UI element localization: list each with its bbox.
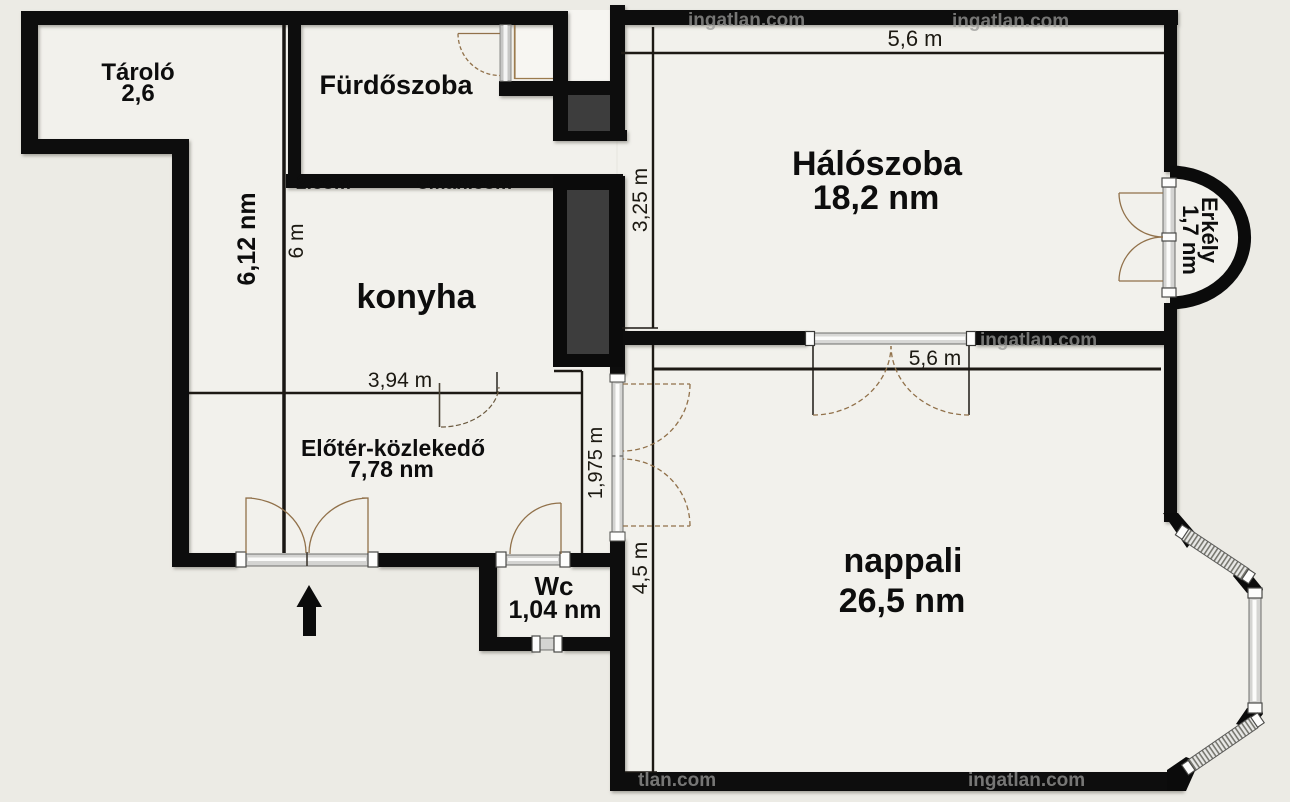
svg-text:5,6 m: 5,6 m	[909, 347, 962, 370]
svg-text:2.com: 2.com	[296, 173, 351, 194]
svg-text:3,94 m: 3,94 m	[368, 369, 432, 392]
svg-text:1,7 nm: 1,7 nm	[1178, 205, 1203, 275]
svg-text:18,2 nm: 18,2 nm	[813, 179, 940, 217]
svg-text:konyha: konyha	[356, 278, 476, 316]
svg-text:ingatlan.com: ingatlan.com	[968, 770, 1085, 791]
svg-text:3,25 m: 3,25 m	[629, 168, 652, 232]
svg-text:5,6 m: 5,6 m	[887, 26, 942, 51]
svg-text:1,975 m: 1,975 m	[585, 427, 607, 499]
svg-text:4,5 m: 4,5 m	[629, 542, 652, 595]
svg-text:oman.com: oman.com	[417, 173, 512, 194]
svg-text:ingatlan.com: ingatlan.com	[952, 11, 1069, 32]
svg-text:ingatlan.com: ingatlan.com	[688, 10, 805, 31]
svg-text:7,78 nm: 7,78 nm	[348, 456, 434, 482]
svg-text:ingatlan.com: ingatlan.com	[980, 330, 1097, 351]
svg-text:Fürdőszoba: Fürdőszoba	[320, 70, 474, 100]
svg-text:26,5 nm: 26,5 nm	[839, 582, 966, 620]
svg-text:6 m: 6 m	[285, 223, 308, 258]
svg-text:tlan.com: tlan.com	[638, 770, 716, 791]
svg-text:6,12 nm: 6,12 nm	[233, 192, 261, 285]
svg-text:Hálószoba: Hálószoba	[792, 145, 963, 183]
svg-text:1,04 nm: 1,04 nm	[508, 596, 601, 624]
svg-text:nappali: nappali	[843, 542, 962, 580]
svg-text:2,6: 2,6	[121, 80, 154, 107]
